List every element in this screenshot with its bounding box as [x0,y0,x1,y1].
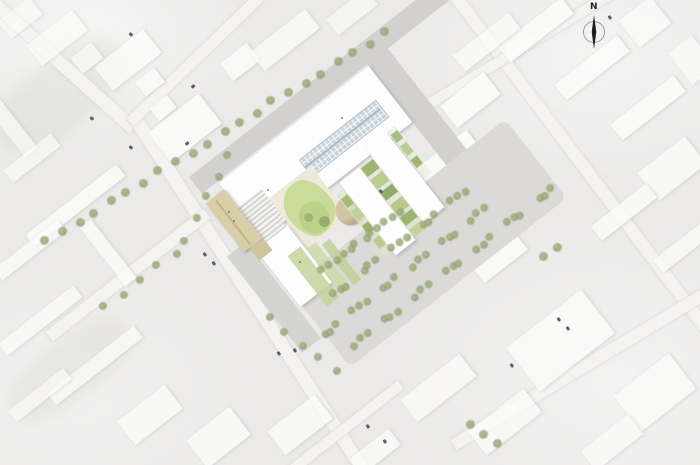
car [203,252,207,257]
car [366,424,370,429]
car [212,261,216,266]
site-plan-map: N [0,0,700,465]
car [293,348,297,353]
car [129,32,134,37]
car [379,189,384,194]
car [277,351,281,356]
site-marker [233,220,235,222]
site-marker [267,189,269,191]
site-marker [341,117,343,119]
car [90,116,95,121]
north-label: N [574,2,614,12]
car [566,326,570,331]
site-marker [299,261,301,263]
car [510,363,514,368]
car [185,141,190,146]
car [383,439,387,444]
north-arrow: N [574,2,614,54]
site-marker [228,211,230,213]
north-arrow-needle [592,15,597,49]
car [191,84,196,89]
car [557,317,561,322]
cars-layer [0,0,700,465]
car [129,145,134,150]
